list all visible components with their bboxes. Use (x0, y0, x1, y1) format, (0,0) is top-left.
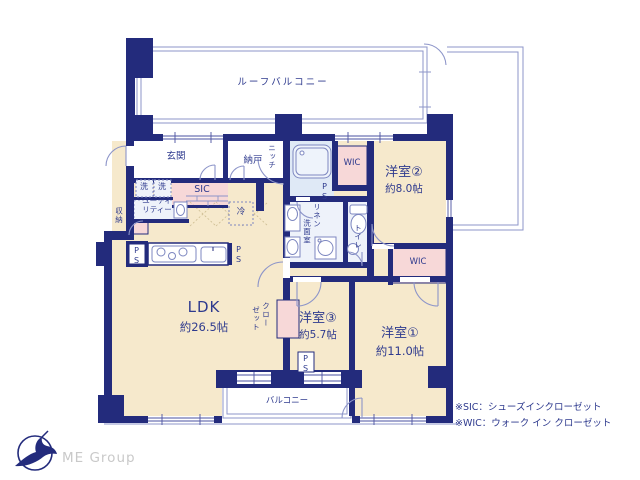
linen-label: リネン (313, 203, 321, 229)
bird-icon (15, 437, 57, 466)
balcony-label: バルコニー (266, 397, 308, 406)
company-name: ME Group (62, 450, 136, 466)
note-sic: ※SIC：シューズインクローゼット (455, 399, 601, 413)
room1-label: 洋室① (381, 327, 419, 340)
ldk-size: 約26.5帖 (180, 322, 229, 334)
closet-label-col2: ゼット (252, 306, 260, 332)
wic-right-label: WIC (410, 258, 427, 267)
washer-label-1: 洗 (140, 183, 148, 191)
room1-size: 約11.0帖 (376, 346, 425, 358)
room3-size: 約5.7帖 (299, 330, 337, 341)
room2-label: 洋室② (385, 166, 423, 179)
washer-label-2: 洗 (158, 183, 166, 191)
utility-label-line2: リティー (142, 206, 172, 214)
ps-label-kitchen-right: PS (234, 245, 242, 265)
utility-label-line1: ユーティ (142, 197, 172, 205)
note-wic: ※WIC：ウォーク イン クローゼット (455, 415, 611, 429)
wall-room1-room3 (349, 282, 355, 416)
wall-room2-left (367, 141, 374, 276)
sic-label: SIC (194, 185, 209, 195)
bathtub (293, 145, 331, 178)
ps-label-kitchen-left: PS (132, 246, 140, 266)
room2-size: 約8.0帖 (385, 184, 423, 195)
storage-label: 収納 (115, 207, 123, 224)
ps-label-room3: PS (301, 354, 309, 374)
fridge-label: 冷 (237, 208, 246, 217)
ldk-label: LDK (188, 300, 221, 315)
wic-top-label: WIC (344, 159, 361, 168)
ps-label-bath: PS (320, 182, 328, 202)
washroom-label: 洗面室 (303, 219, 311, 245)
niche-label: ニッチ (268, 144, 276, 170)
roof-balcony-label: ルーフバルコニー (237, 78, 328, 88)
toilet-fixture (350, 205, 367, 214)
entrance-label: 玄関 (166, 152, 185, 162)
toilet-label: トイレ (354, 224, 362, 250)
storage-room-label: 納戸 (243, 156, 262, 166)
company-logo (8, 428, 64, 480)
floor-plan-page: ルーフバルコニー 玄関 納戸 ニッチ WIC 洋室② 約8.0帖 リネン 洗面室… (0, 0, 640, 480)
closet-block (277, 300, 299, 338)
bird-beak (42, 431, 48, 437)
room3-label: 洋室③ (299, 312, 337, 325)
closet-label-col1: クロー (262, 302, 270, 328)
